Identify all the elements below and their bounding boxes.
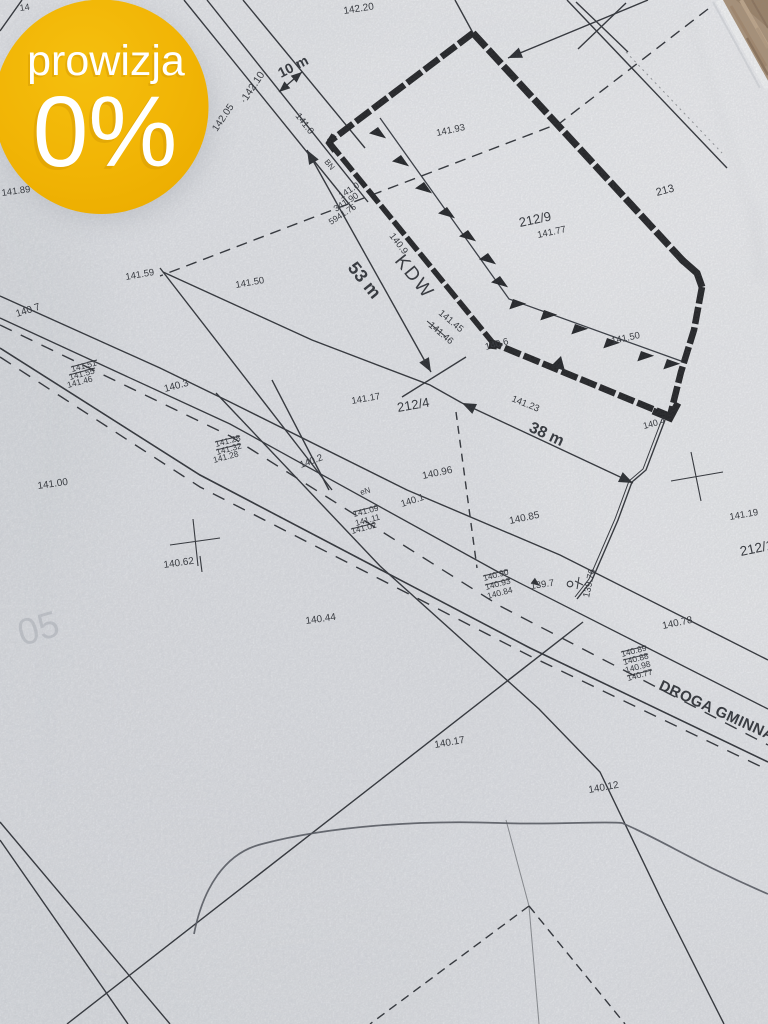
svg-text:0%: 0% [33,76,178,188]
